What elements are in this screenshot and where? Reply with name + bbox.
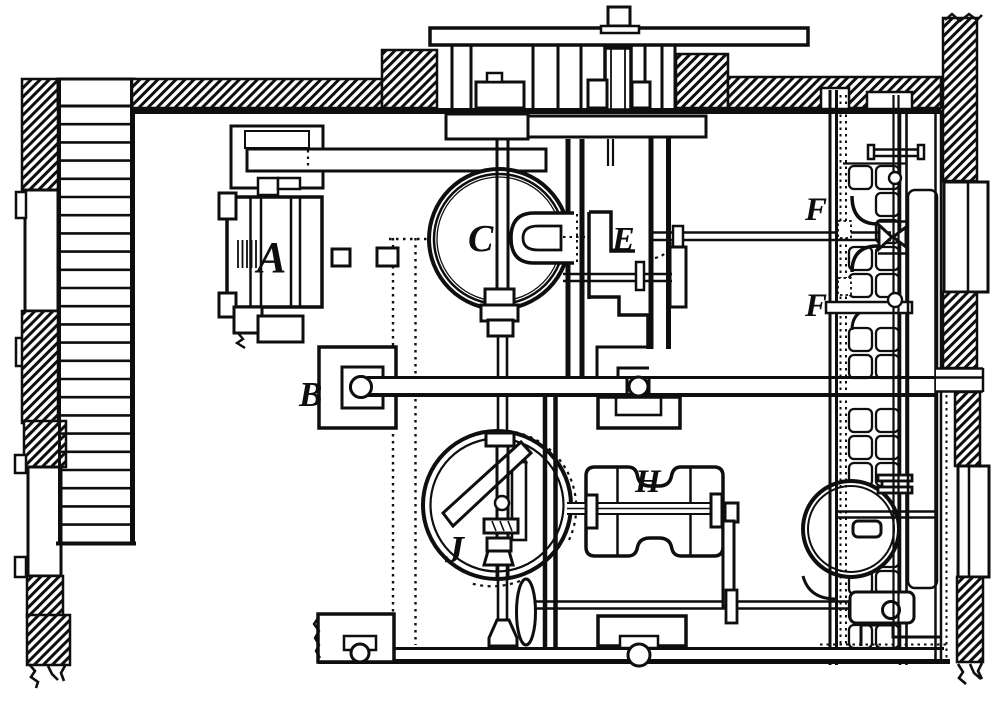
svg-text:F: F [804, 192, 827, 228]
svg-text:H: H [634, 464, 662, 500]
svg-text:A: A [254, 233, 286, 282]
svg-text:F: F [804, 288, 827, 324]
svg-text:C: C [468, 218, 494, 260]
svg-text:E: E [611, 221, 635, 258]
svg-text:J: J [444, 529, 465, 571]
svg-text:B: B [298, 375, 322, 414]
